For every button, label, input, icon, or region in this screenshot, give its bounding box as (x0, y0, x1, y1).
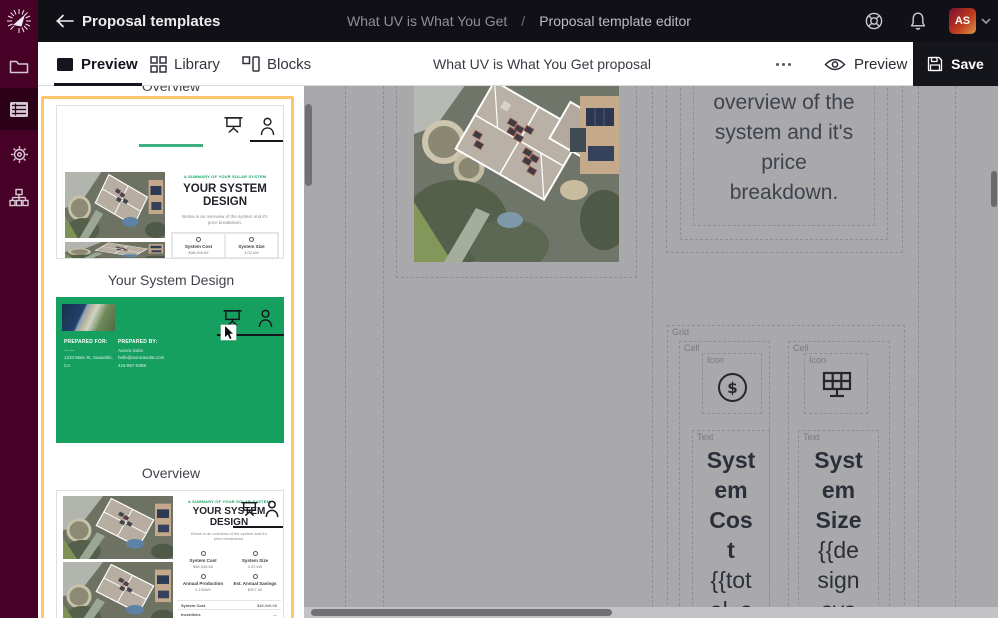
solar-panel-icon (821, 371, 853, 399)
pages-panel: Overview (38, 86, 304, 618)
bell-icon (908, 11, 928, 31)
cover-photo (62, 304, 115, 331)
tagline-placeholder (139, 144, 203, 147)
thumb-content: A SUMMARY OF YOUR SOLAR SYSTEM YOUR SYST… (171, 174, 279, 259)
more-options-button[interactable] (776, 42, 791, 86)
arrow-left-icon (54, 13, 76, 29)
top-bar: Proposal templates What UV is What You G… (0, 0, 998, 42)
person-icon[interactable] (259, 115, 276, 138)
panel-vertical-scrollbar[interactable] (305, 104, 312, 186)
prepared-for-label: PREPARED FOR: (64, 339, 113, 345)
thumb-title: YOUR SYSTEM DESIGN (171, 183, 279, 209)
cell-label: Cell (684, 343, 700, 353)
text-block-cost[interactable]: Text Syst em Cos t {{tot al_s (692, 430, 770, 618)
text-label: Text (697, 432, 714, 442)
aerial-photo-thumb (65, 172, 165, 238)
person-icon[interactable] (257, 307, 274, 330)
preview-button[interactable]: Preview (824, 42, 907, 86)
grid-label: Grid (672, 327, 689, 337)
aerial-photo-thumb (63, 496, 173, 559)
page-thumbnail-system-design[interactable]: A SUMMARY OF YOUR SOLAR SYSTEM YOUR SYST… (56, 105, 284, 259)
blocks-icon (242, 55, 260, 73)
sidebar-item-settings[interactable] (0, 133, 38, 175)
gear-icon (10, 145, 29, 164)
layout-guide (345, 86, 346, 618)
grid-2x2-icon (150, 56, 167, 73)
hierarchy-icon (9, 188, 29, 208)
sunburst-logo-icon (6, 8, 32, 34)
back-button[interactable] (54, 13, 76, 29)
tab-preview-label: Preview (81, 56, 138, 73)
active-tab-underline (54, 83, 142, 86)
editor-canvas[interactable]: overview of the system and it's price br… (304, 86, 998, 618)
aerial-photo-thumb (63, 562, 173, 618)
thumb-body: Below is an overview of the system and i… (182, 214, 268, 225)
prepared-for-block: PREPARED FOR: — — 1234 Main St, Sausalit… (64, 339, 113, 368)
breadcrumb-current: Proposal template editor (539, 13, 691, 29)
page-title: Proposal templates (82, 0, 220, 42)
save-button-label: Save (951, 56, 984, 72)
stat-cell: System Size3.02 kW (229, 548, 281, 571)
editor-toolbar: Preview Library Blocks What UV is What Y… (38, 42, 998, 86)
page-label-overview: Overview (38, 465, 304, 481)
visibility-underline (250, 140, 284, 142)
thumb-body: Below is an overview of the system and i… (186, 531, 271, 541)
page-label-system-design: Your System Design (38, 272, 304, 288)
icon-block-size[interactable]: Icon (804, 353, 868, 414)
nav-sidebar (0, 42, 38, 618)
presentation-screen-icon[interactable] (241, 501, 258, 516)
presentation-screen-icon[interactable] (224, 116, 243, 133)
canvas-horizontal-scrollbar[interactable] (311, 609, 612, 616)
stat-cell: Annual Production0.10kWh (172, 258, 225, 259)
floppy-disk-icon (927, 56, 943, 72)
sidebar-item-templates[interactable] (0, 88, 38, 130)
save-button[interactable]: Save (913, 42, 998, 86)
stat-cell: Est. Annual Savings$307.84 (225, 258, 278, 259)
template-list-icon (9, 101, 29, 118)
mouse-pointer-icon (224, 326, 234, 340)
layout-guide (383, 86, 384, 618)
sidebar-item-hierarchy[interactable] (0, 177, 38, 219)
stat-cell: System Size3.02 kW (225, 233, 278, 258)
tab-blocks[interactable]: Blocks (242, 42, 311, 86)
preview-button-label: Preview (854, 56, 907, 73)
ellipsis-icon (776, 63, 779, 66)
prepared-by-label: PREPARED BY: (118, 339, 164, 345)
solid-panel-icon (56, 57, 74, 72)
icon-label: Icon (707, 355, 724, 365)
layout-guide (955, 86, 956, 618)
breadcrumb: What UV is What You Get / Proposal templ… (347, 0, 691, 42)
overview-paragraph[interactable]: overview of the system and it's price br… (693, 88, 875, 208)
thumb-eyebrow: A SUMMARY OF YOUR SOLAR SYSTEM (171, 174, 279, 179)
sidebar-item-projects[interactable] (0, 46, 38, 88)
app-logo[interactable] (0, 0, 38, 42)
stat-cell: Est. Annual Savings$307.84 (229, 571, 281, 594)
stat-cell: System Cost$48,946.65 (172, 233, 225, 258)
document-title: What UV is What You Get proposal (392, 42, 692, 86)
prepared-by-block: PREPARED BY: Aurora Solar hello@auroraso… (118, 339, 164, 368)
canvas-horizontal-scrollbar-track[interactable] (304, 607, 998, 618)
page-thumbnail-overview[interactable]: A SUMMARY OF YOUR SOLAR SYSTEM YOUR SYST… (56, 490, 284, 618)
canvas-vertical-scrollbar[interactable] (991, 171, 997, 207)
mouse-cursor (221, 325, 236, 340)
stat-cell: System Cost$48,946.65 (177, 548, 229, 571)
account-menu-button[interactable] (981, 17, 991, 25)
folder-icon (9, 59, 29, 75)
presentation-screen-icon[interactable] (223, 309, 242, 326)
design-aerial-image[interactable] (414, 86, 619, 262)
tab-blocks-label: Blocks (267, 56, 311, 73)
tab-library-label: Library (174, 56, 220, 73)
tab-preview[interactable]: Preview (56, 42, 138, 86)
help-button[interactable] (864, 11, 884, 31)
text-block-size[interactable]: Text Syst em Size {{de sign sys (798, 430, 879, 618)
page-label-overview-top: Overview (38, 86, 304, 94)
text-label: Text (803, 432, 820, 442)
svg-text:$: $ (727, 379, 737, 397)
dollar-circle-icon: $ (717, 372, 748, 403)
layout-guide (918, 86, 919, 618)
layout-guide (652, 86, 653, 618)
person-icon[interactable] (264, 499, 280, 519)
breadcrumb-separator: / (521, 13, 525, 29)
page-thumbnail-cover[interactable]: PREPARED FOR: — — 1234 Main St, Sausalit… (56, 297, 284, 443)
cost-table: System Cost$48,946.65 Incentives— Net Sy… (177, 600, 281, 618)
aerial-photo-thumb (65, 242, 165, 259)
icon-block-cost[interactable]: Icon $ (702, 353, 762, 414)
cell-label: Cell (793, 343, 809, 353)
visibility-underline (233, 526, 284, 528)
eye-icon (824, 57, 846, 72)
breadcrumb-parent[interactable]: What UV is What You Get (347, 13, 507, 29)
stat-cell: Annual Production0.10kWh (177, 571, 229, 594)
app-window: Proposal templates What UV is What You G… (0, 0, 998, 618)
icon-label: Icon (809, 355, 826, 365)
life-ring-icon (864, 11, 884, 31)
chevron-down-icon (981, 17, 991, 25)
notifications-button[interactable] (908, 11, 928, 31)
tab-library[interactable]: Library (150, 42, 220, 86)
account-avatar[interactable]: AS (949, 8, 976, 34)
